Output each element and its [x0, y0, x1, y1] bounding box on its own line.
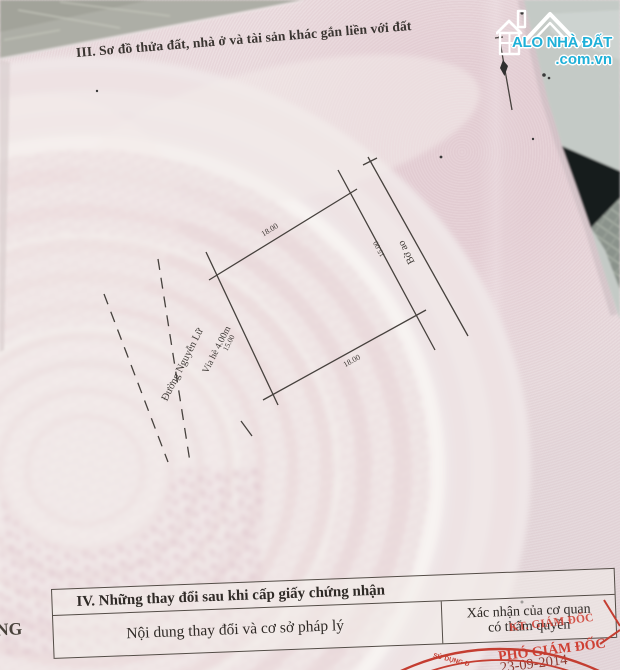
- svg-text:Bờ ao: Bờ ao: [396, 238, 417, 265]
- svg-text:Đường Nguyễn Lữ: Đường Nguyễn Lữ: [160, 326, 206, 402]
- svg-text:18.00: 18.00: [260, 221, 280, 238]
- svg-text:15.00: 15.00: [371, 239, 387, 258]
